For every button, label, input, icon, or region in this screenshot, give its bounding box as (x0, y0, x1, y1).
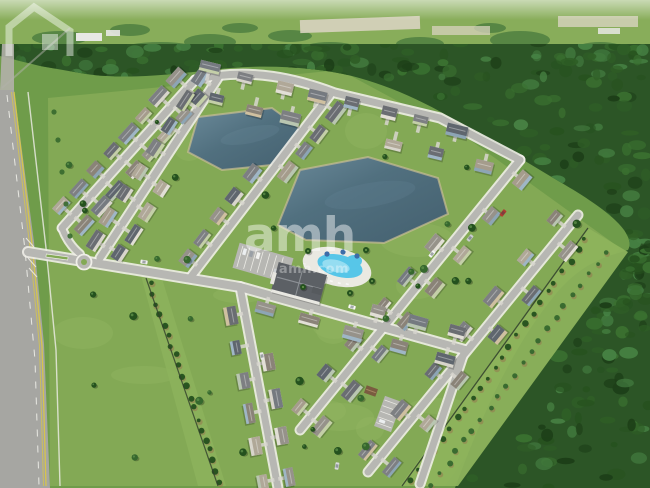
aerial-photo: amh amh.com (0, 0, 650, 488)
aerial-scene (0, 0, 650, 488)
